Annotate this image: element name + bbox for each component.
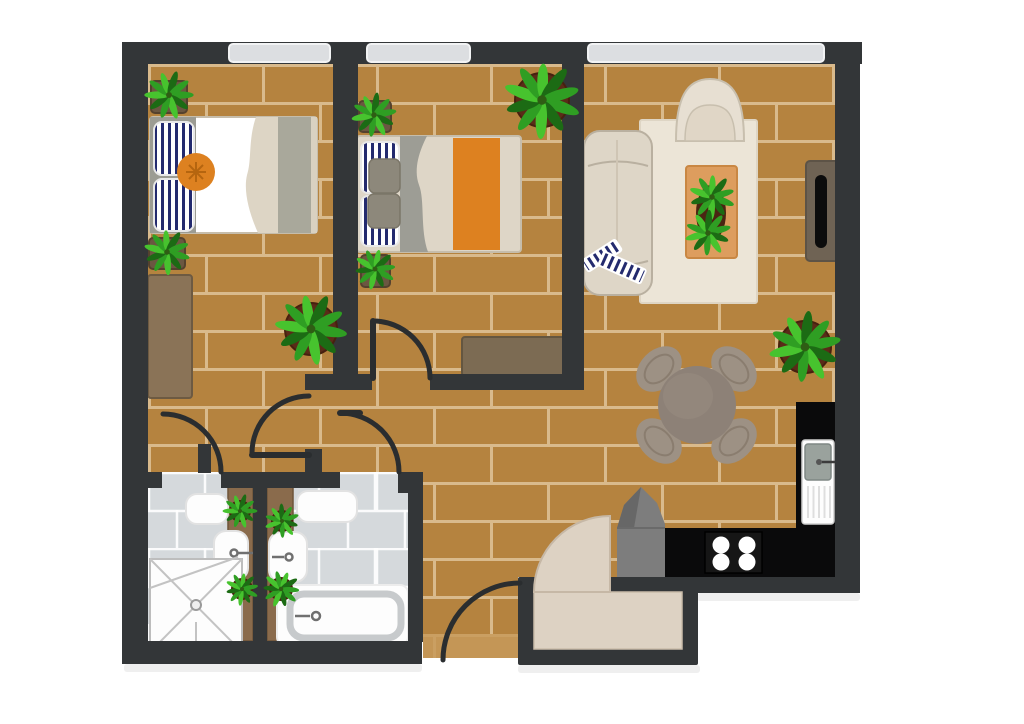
faucet bbox=[816, 459, 822, 465]
window bbox=[367, 44, 470, 62]
kitchen-sink bbox=[802, 440, 836, 524]
burner bbox=[713, 537, 730, 554]
square-cushion bbox=[368, 194, 400, 228]
shower bbox=[150, 557, 242, 652]
sideboard bbox=[462, 337, 567, 376]
coffee-table bbox=[680, 166, 742, 261]
blanket-band bbox=[278, 117, 311, 233]
stove bbox=[705, 532, 762, 573]
orange-runner bbox=[453, 138, 500, 250]
square-cushion bbox=[369, 159, 400, 193]
tv-screen bbox=[815, 175, 827, 248]
window bbox=[588, 44, 824, 62]
sofa bbox=[581, 131, 652, 295]
burner bbox=[739, 537, 756, 554]
shower-drain bbox=[191, 600, 201, 610]
orange-round-cushion bbox=[177, 153, 215, 191]
bathtub bbox=[277, 585, 408, 645]
burner bbox=[713, 554, 730, 571]
wall-bathroom-divider bbox=[253, 472, 267, 642]
floor-plan bbox=[0, 0, 1024, 724]
doormat bbox=[534, 592, 682, 649]
bath-shelf bbox=[297, 491, 357, 522]
tv-console bbox=[806, 161, 839, 261]
bed-foot-strip bbox=[311, 117, 317, 233]
round-dining-table bbox=[658, 366, 736, 444]
burner bbox=[739, 554, 756, 571]
bath-shelf bbox=[186, 494, 228, 524]
dresser bbox=[148, 275, 192, 398]
double-bed bbox=[357, 136, 521, 252]
window bbox=[229, 44, 330, 62]
double-bed bbox=[150, 117, 317, 233]
